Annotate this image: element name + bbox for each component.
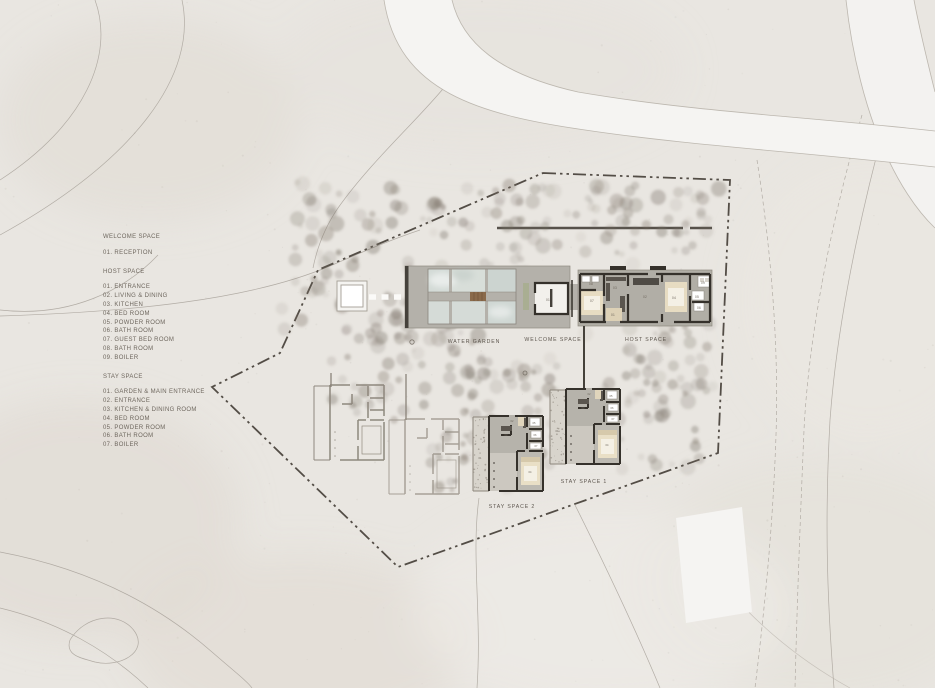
legend-section-title: STAY SPACE xyxy=(103,373,233,382)
room-number: 09 xyxy=(701,281,705,285)
room-number: 01 xyxy=(546,298,550,302)
host-space-plan: 01 02 03 04 05 06 07 08 09 xyxy=(578,266,712,326)
label-welcome-space: WELCOME SPACE xyxy=(524,337,581,343)
legend-item: 07. GUEST BED ROOM xyxy=(103,336,233,345)
room-number: 03 xyxy=(613,286,617,290)
legend-section-stay: STAY SPACE 01. GARDEN & MAIN ENTRANCE02.… xyxy=(103,373,233,450)
legend-section-host: HOST SPACE 01. ENTRANCE02. LIVING & DINI… xyxy=(103,268,233,363)
legend-item: 02. ENTRANCE xyxy=(103,397,233,406)
legend-item: 01. GARDEN & MAIN ENTRANCE xyxy=(103,388,233,397)
label-water-garden: WATER GARDEN xyxy=(448,339,501,345)
reception-desk xyxy=(550,289,552,307)
dining-table xyxy=(633,278,659,285)
legend-item: 05. POWDER ROOM xyxy=(103,319,233,328)
kitchen-counter xyxy=(606,277,626,281)
legend-item: 08. BATH ROOM xyxy=(103,345,233,354)
legend-item: 03. KITCHEN xyxy=(103,301,233,310)
legend-item: 05. POWDER ROOM xyxy=(103,424,233,433)
legend-item: 04. BED ROOM xyxy=(103,310,233,319)
site-plan-canvas: 01 01 02 03 04 05 06 07 08 09 xyxy=(0,0,935,688)
legend-item: 09. BOILER xyxy=(103,354,233,363)
room-number: 06 xyxy=(697,306,701,310)
room-number: 01 xyxy=(611,313,615,317)
label-stay-space-2: STAY SPACE 2 xyxy=(489,504,535,510)
label-stay-space-1: STAY SPACE 1 xyxy=(561,479,607,485)
white-building-footprint xyxy=(676,507,752,623)
legend-section-welcome: WELCOME SPACE 01. RECEPTION xyxy=(103,233,233,258)
legend: WELCOME SPACE 01. RECEPTION HOST SPACE 0… xyxy=(103,233,233,460)
legend-item: 04. BED ROOM xyxy=(103,415,233,424)
legend-item: 06. BATH ROOM xyxy=(103,432,233,441)
legend-item: 01. RECEPTION xyxy=(103,249,233,258)
room-number: 08 xyxy=(589,282,593,286)
welcome-space-plan: 01 xyxy=(535,280,572,317)
entry-pavilion xyxy=(337,281,367,311)
legend-item: 01. ENTRANCE xyxy=(103,283,233,292)
room-number: 07 xyxy=(590,299,594,303)
room-number: 02 xyxy=(643,295,647,299)
label-host-space: HOST SPACE xyxy=(625,337,667,343)
legend-item: 02. LIVING & DINING xyxy=(103,292,233,301)
legend-section-title: HOST SPACE xyxy=(103,268,233,277)
legend-item: 07. BOILER xyxy=(103,441,233,450)
stay-plan: 01020304050607 xyxy=(550,388,620,464)
room-number: 04 xyxy=(672,296,676,300)
legend-section-title: WELCOME SPACE xyxy=(103,233,233,242)
legend-item: 06. BATH ROOM xyxy=(103,327,233,336)
room-number: 05 xyxy=(695,295,699,299)
legend-item: 03. KITCHEN & DINING ROOM xyxy=(103,406,233,415)
stay-plan: 01020304050607 xyxy=(473,415,543,491)
